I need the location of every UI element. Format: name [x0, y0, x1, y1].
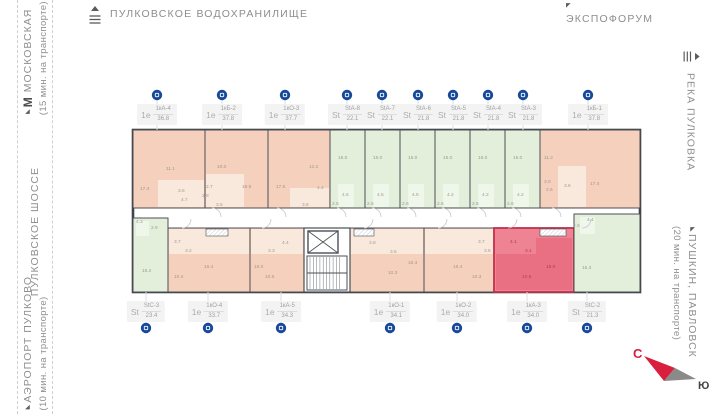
- unit-type: 1е: [141, 110, 150, 120]
- room-area-label: 2.9: [151, 225, 158, 231]
- unit-area: 34.3: [278, 311, 297, 320]
- unit-area: 23.4: [142, 311, 161, 320]
- unit-pin-1кО-3[interactable]: [280, 90, 290, 100]
- room-area-label: 2.7: [206, 184, 213, 190]
- room-area-label: 4.4: [282, 240, 289, 246]
- unit-type: St: [367, 110, 375, 120]
- compass-south-label: Ю: [698, 380, 709, 392]
- room-area-label: 15.0: [338, 155, 348, 161]
- unit-1кБ-1[interactable]: [540, 130, 640, 208]
- room-area-label: 3.6: [484, 248, 491, 254]
- unit-area: 21.3: [583, 311, 602, 320]
- unit-pin-StА-5[interactable]: [448, 90, 458, 100]
- room-area-label: 15.0: [513, 155, 523, 161]
- unit-area: 21.8: [449, 114, 468, 123]
- unit-pin-1кО-2[interactable]: [452, 323, 462, 333]
- room-area-label: 3.6: [302, 202, 309, 208]
- unit-type: 1е: [192, 307, 201, 317]
- unit-type: 1е: [511, 307, 520, 317]
- unit-label-1кО-2[interactable]: 1е1кО-234.0: [437, 301, 477, 322]
- unit-label-1кО-3[interactable]: 1е1кО-337.7: [265, 104, 305, 125]
- unit-area: 36.8: [154, 114, 173, 123]
- unit-code: StА-5: [449, 106, 468, 114]
- room-area-label: 15.0: [478, 155, 488, 161]
- room-area-label: 4.4: [317, 185, 324, 191]
- unit-label-StС-2[interactable]: StStС-221.3: [568, 301, 606, 322]
- unit-area: 33.7: [204, 311, 224, 320]
- unit-area: 21.8: [414, 114, 433, 123]
- unit-type: St: [403, 110, 411, 120]
- unit-area: 22.1: [378, 114, 397, 123]
- unit-label-1кО-1[interactable]: 1е1кО-134.1: [370, 301, 410, 322]
- unit-code: 1кА-5: [278, 303, 297, 311]
- unit-area: 37.8: [219, 114, 238, 123]
- unit-label-StА-7[interactable]: StStА-722.1: [363, 104, 401, 125]
- unit-code: 1кБ-2: [219, 106, 238, 114]
- room-area-label: 4.4: [587, 217, 594, 223]
- room-area-label: 10.6: [522, 274, 532, 280]
- room-area-label: 17.5: [276, 184, 286, 190]
- room-area-label: 3.0: [544, 179, 551, 185]
- unit-code: StА-3: [519, 106, 538, 114]
- room-area-label: 16.0: [254, 264, 264, 270]
- unit-pin-1кА-4[interactable]: [152, 90, 162, 100]
- unit-type: 1е: [206, 110, 215, 120]
- floor-plan-svg: 17.411.13.64.710.02.72.83.518.817.512.24…: [0, 0, 720, 414]
- unit-area: 37.7: [281, 114, 301, 123]
- unit-code: 1кА-4: [154, 106, 173, 114]
- unit-pin-StС-2[interactable]: [582, 323, 592, 333]
- room-area-label: 2.8: [202, 193, 209, 199]
- unit-code: StА-8: [343, 106, 362, 114]
- compass-north-label: С: [633, 346, 643, 361]
- room-area-label: 2.6: [472, 201, 479, 207]
- unit-type: St: [572, 307, 580, 317]
- unit-type: St: [332, 110, 340, 120]
- room-area-label: 3.7: [478, 239, 485, 245]
- room-area-label: 16.4: [204, 264, 214, 270]
- unit-label-1кБ-2[interactable]: 1е1кБ-237.8: [202, 104, 242, 125]
- room-area-label: 3.3: [268, 248, 275, 254]
- unit-label-StА-6[interactable]: StStА-621.8: [399, 104, 437, 125]
- room-area-label: 4.2: [482, 192, 489, 198]
- unit-code: 1кО-3: [281, 106, 301, 114]
- room-area-label: 4.3: [136, 219, 143, 225]
- unit-type: St: [438, 110, 446, 120]
- room-shade: [558, 166, 586, 207]
- water-waves-icon: [88, 5, 102, 32]
- room-area-label: 16.4: [453, 264, 463, 270]
- room-area-label: 2.6: [367, 201, 374, 207]
- stair-elevator-core: [304, 228, 350, 292]
- unit-pin-1кБ-2[interactable]: [217, 90, 227, 100]
- room-area-label: 10.4: [174, 274, 184, 280]
- room-area-label: 18.8: [242, 184, 252, 190]
- room-area-label: 3.6: [390, 249, 397, 255]
- unit-type: St: [508, 110, 516, 120]
- room-area-label: 2.6: [437, 201, 444, 207]
- room-area-label: 3.8: [369, 240, 376, 246]
- unit-type: St: [131, 307, 139, 317]
- room-area-label: 10.6: [265, 274, 275, 280]
- room-area-label: 3.6: [178, 188, 185, 194]
- room-area-label: 12.2: [309, 164, 319, 170]
- unit-type: St: [473, 110, 481, 120]
- room-area-label: 17.4: [140, 186, 150, 192]
- room-area-label: 4.1: [510, 239, 517, 245]
- unit-area: 34.1: [386, 311, 406, 320]
- room-area-label: 3.5: [216, 202, 223, 208]
- unit-pin-1кА-5[interactable]: [276, 323, 286, 333]
- unit-code: 1кО-4: [204, 303, 224, 311]
- room-area-label: 4.7: [181, 197, 188, 203]
- room-area-label: 17.4: [590, 181, 600, 187]
- unit-area: 34.0: [453, 311, 473, 320]
- unit-pin-StА-8[interactable]: [342, 90, 352, 100]
- room-area-label: 4.2: [517, 192, 524, 198]
- room-area-label: 11.1: [166, 166, 175, 172]
- room-area-label: 16.4: [408, 260, 418, 266]
- unit-pin-StА-7[interactable]: [377, 90, 387, 100]
- unit-area: 21.8: [519, 114, 538, 123]
- unit-code: StС-2: [583, 303, 602, 311]
- unit-code: StА-4: [484, 106, 503, 114]
- unit-label-StА-8[interactable]: StStА-822.1: [328, 104, 366, 125]
- room-area-label: 2.6: [546, 187, 553, 193]
- unit-label-1кА-3[interactable]: 1е1кА-334.0: [507, 301, 547, 322]
- room-area-label: 11.2: [544, 155, 553, 161]
- unit-label-1кА-5[interactable]: 1е1кА-534.3: [261, 301, 301, 322]
- unit-code: StА-7: [378, 106, 397, 114]
- unit-code: StА-6: [414, 106, 433, 114]
- unit-code: 1кО-2: [453, 303, 473, 311]
- room-shade: [206, 174, 244, 207]
- unit-label-StС-3[interactable]: StStС-323.4: [127, 301, 165, 322]
- room-area-label: 3.6: [564, 183, 571, 189]
- room-area-label: 4.2: [447, 192, 454, 198]
- unit-pin-1кО-4[interactable]: [203, 323, 213, 333]
- unit-type: 1е: [572, 110, 581, 120]
- unit-pin-StС-3[interactable]: [141, 323, 151, 333]
- unit-code: StС-3: [142, 303, 161, 311]
- balcony-hatch-icon: [540, 229, 566, 236]
- room-area-label: 15.0: [408, 155, 418, 161]
- room-area-label: 16.2: [142, 268, 152, 274]
- room-area-label: 3.7: [174, 239, 181, 245]
- room-area-label: 2.6: [332, 201, 339, 207]
- room-area-label: 2.9: [573, 223, 580, 229]
- unit-code: 1кО-1: [386, 303, 406, 311]
- unit-area: 34.0: [524, 311, 543, 320]
- compass: С Ю: [622, 326, 718, 410]
- unit-pin-1кА-3[interactable]: [522, 323, 532, 333]
- room-area-label: 16.0: [546, 264, 556, 270]
- unit-label-StА-5[interactable]: StStА-521.8: [434, 104, 472, 125]
- unit-type: 1е: [269, 110, 278, 120]
- unit-pin-1кБ-1[interactable]: [583, 90, 593, 100]
- unit-label-1кО-4[interactable]: 1е1кО-433.7: [188, 301, 228, 322]
- unit-code: 1кА-3: [524, 303, 543, 311]
- floor-plan-page: ПУЛКОВСКОЕ ВОДОХРАНИЛИЩЕ ◤ ЭКСПОФОРУМ М …: [0, 0, 720, 414]
- unit-area: 22.1: [343, 114, 362, 123]
- unit-area: 21.8: [484, 114, 503, 123]
- room-area-label: 10.0: [217, 164, 227, 170]
- unit-code: 1кБ-1: [585, 106, 604, 114]
- balcony-hatch-icon: [206, 229, 228, 236]
- room-area-label: 10.3: [388, 270, 398, 276]
- unit-area: 37.8: [585, 114, 604, 123]
- room-shade: [536, 238, 572, 290]
- room-area-label: 4.5: [342, 192, 349, 198]
- room-shade: [496, 254, 536, 290]
- unit-pin-StА-6[interactable]: [413, 90, 423, 100]
- room-shade: [251, 229, 303, 254]
- room-area-label: 3.1: [525, 248, 532, 254]
- unit-label-1кА-4[interactable]: 1е1кА-436.8: [137, 104, 177, 125]
- room-area-label: 3.2: [185, 248, 192, 254]
- unit-pin-1кО-1[interactable]: [385, 323, 395, 333]
- water-waves-icon: [676, 50, 701, 64]
- unit-type: 1е: [374, 307, 383, 317]
- unit-label-StА-3[interactable]: StStА-321.8: [504, 104, 542, 125]
- unit-label-1кБ-1[interactable]: 1е1кБ-137.8: [568, 104, 608, 125]
- unit-label-StА-4[interactable]: StStА-421.8: [469, 104, 507, 125]
- room-area-label: 2.6: [507, 201, 514, 207]
- unit-type: 1е: [265, 307, 274, 317]
- room-area-label: 15.0: [373, 155, 383, 161]
- unit-pin-StА-3[interactable]: [518, 90, 528, 100]
- room-area-label: 2.6: [402, 201, 409, 207]
- room-area-label: 16.3: [582, 265, 592, 271]
- room-area-label: 15.0: [443, 155, 453, 161]
- room-area-label: 4.5: [377, 192, 384, 198]
- balcony-hatch-icon: [354, 229, 374, 236]
- room-area-label: 4.5: [412, 192, 419, 198]
- unit-type: 1е: [441, 307, 450, 317]
- room-area-label: 10.3: [472, 274, 482, 280]
- unit-pin-StА-4[interactable]: [483, 90, 493, 100]
